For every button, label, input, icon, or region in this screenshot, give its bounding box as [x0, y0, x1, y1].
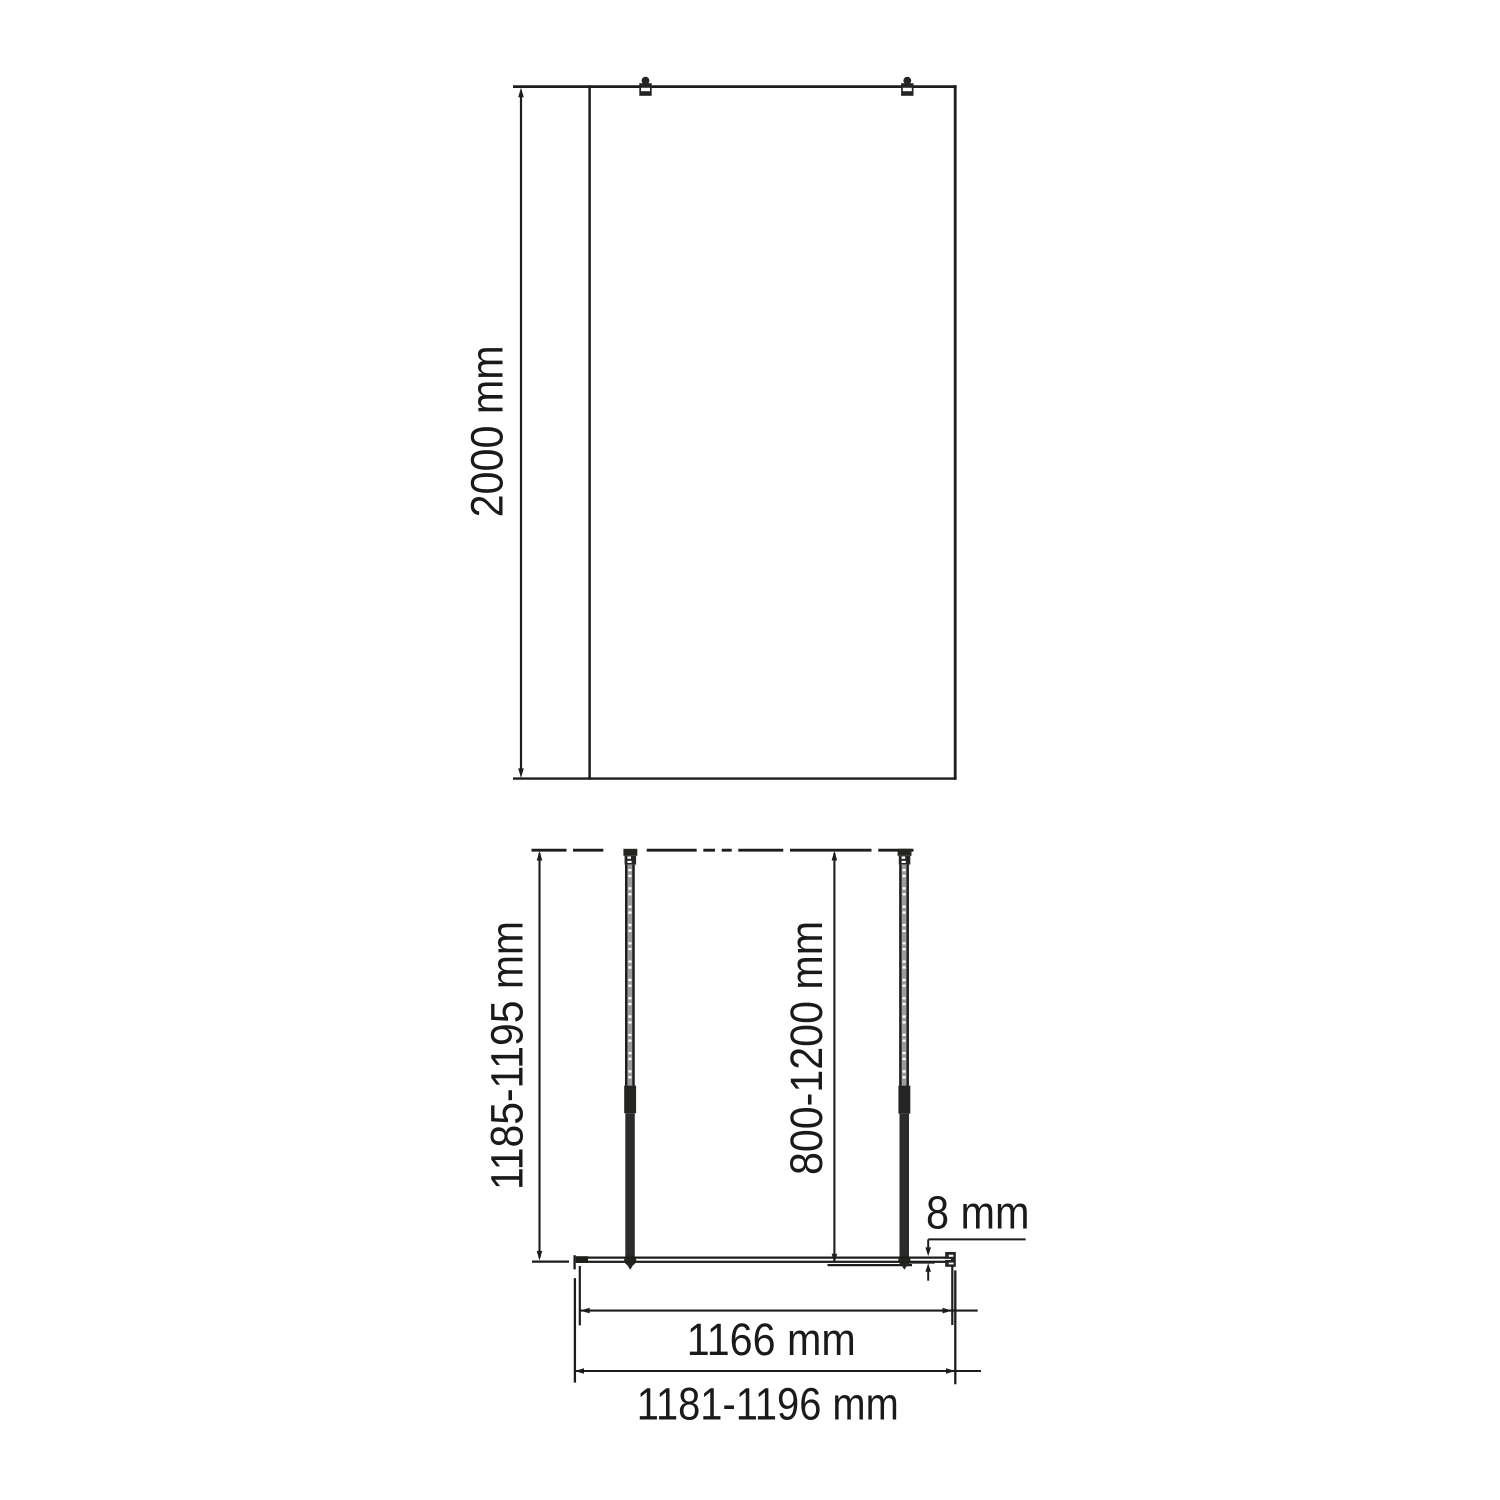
- svg-text:800-1200 mm: 800-1200 mm: [781, 921, 832, 1175]
- svg-text:8 mm: 8 mm: [926, 1186, 1030, 1238]
- svg-text:2000 mm: 2000 mm: [462, 345, 513, 517]
- svg-text:1166 mm: 1166 mm: [687, 1314, 856, 1365]
- svg-text:1185-1195 mm: 1185-1195 mm: [482, 921, 533, 1190]
- svg-text:1181-1196 mm: 1181-1196 mm: [637, 1379, 899, 1430]
